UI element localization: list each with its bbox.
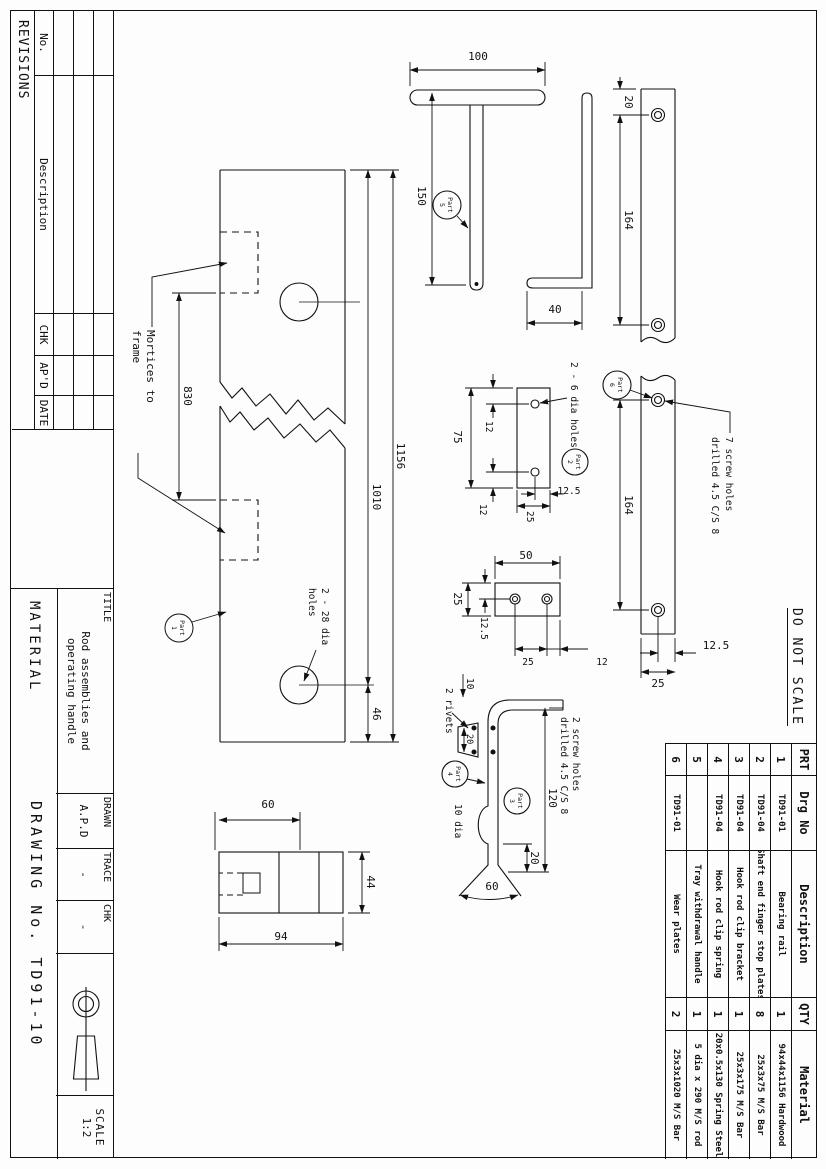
dim-60-end: 60 xyxy=(261,798,274,811)
dim-1010: 1010 xyxy=(370,484,383,511)
screw-holes-2-note: drilled 4.5 C/S 8 xyxy=(558,717,569,815)
dim-20: 20 xyxy=(622,95,635,108)
drawing-page: DO NOT SCALE No.DescriptionCHKAP'DDATE R… xyxy=(0,0,826,1169)
dim-150: 150 xyxy=(415,186,428,206)
svg-text:Part: Part xyxy=(616,377,624,393)
break-zigzag xyxy=(220,382,345,424)
svg-text:Part: Part xyxy=(454,766,462,782)
dim-94: 94 xyxy=(274,930,288,943)
mortice-hidden-outline xyxy=(220,500,258,560)
dim-25: 25 xyxy=(451,592,464,605)
screw-holes-7-note: drilled 4.5 C/S 8 xyxy=(709,437,720,535)
bearing-rail-labels: 1156 1010 46 830 Mortices to frame 2 - 2… xyxy=(130,330,407,721)
dim-60: 60 xyxy=(485,880,498,893)
svg-text:5: 5 xyxy=(438,203,446,207)
bearing-rail-view xyxy=(138,170,399,742)
drawing-sheet: DO NOT SCALE No.DescriptionCHKAP'DDATE R… xyxy=(0,0,826,1169)
dim-1156: 1156 xyxy=(394,443,407,470)
holes-28-note: 2 - 28 dia xyxy=(319,588,330,645)
svg-text:1: 1 xyxy=(170,626,178,630)
dim-12: 12 xyxy=(477,504,488,515)
holes-6-note: 2 - 6 dia holes xyxy=(568,362,579,448)
dim-100: 100 xyxy=(468,50,488,63)
handle-side-view xyxy=(527,93,592,330)
svg-text:2: 2 xyxy=(566,460,574,464)
bracket-top-labels: 50 25 12.5 25 12 xyxy=(451,549,608,668)
svg-text:3: 3 xyxy=(508,799,516,803)
dim-164: 164 xyxy=(622,495,635,515)
dim-12-5: 12.5 xyxy=(478,617,489,640)
svg-text:6: 6 xyxy=(608,383,616,387)
handle-front-view xyxy=(410,62,545,290)
dim-46: 46 xyxy=(370,707,383,720)
svg-text:Part: Part xyxy=(446,197,454,213)
svg-text:Part: Part xyxy=(516,793,524,809)
dim-12: 12 xyxy=(596,657,607,668)
dim-20: 20 xyxy=(528,851,541,864)
svg-text:4: 4 xyxy=(446,772,454,776)
dim-25: 25 xyxy=(522,657,533,668)
rod-dia-note: 10 dia xyxy=(452,804,463,838)
break-zigzag xyxy=(220,406,345,448)
svg-text:Part: Part xyxy=(574,454,582,470)
dim-12: 12 xyxy=(483,421,494,432)
wear-plate-labels: 20 164 164 12.5 25 7 screw holes drilled… xyxy=(608,95,734,690)
dim-10: 10 xyxy=(464,678,475,690)
dim-25: 25 xyxy=(524,511,535,522)
dim-44: 44 xyxy=(364,875,377,889)
screw-holes-2-note: 2 screw holes xyxy=(570,717,581,791)
dim-12-5: 12.5 xyxy=(703,639,730,652)
dim-20: 20 xyxy=(464,734,474,744)
dim-25: 25 xyxy=(651,677,664,690)
holes-28-note: holes xyxy=(306,588,317,617)
dim-164: 164 xyxy=(622,210,635,230)
drawing-canvas: 1156 1010 46 830 Mortices to frame 2 - 2… xyxy=(0,0,826,1169)
mortice-hidden-outline xyxy=(220,232,258,293)
dim-12-5: 12.5 xyxy=(558,486,581,497)
mortices-note: Mortices to xyxy=(144,330,157,403)
mortices-note: frame xyxy=(130,330,143,363)
rail-end-view xyxy=(215,812,370,951)
dim-75: 75 xyxy=(451,430,464,443)
dim-40: 40 xyxy=(548,303,561,316)
dim-50: 50 xyxy=(519,549,532,562)
svg-text:Part: Part xyxy=(178,620,186,636)
bracket-top-view xyxy=(462,556,588,656)
clip-spring-view xyxy=(442,674,563,900)
rivets-note: 2 rivets xyxy=(443,688,454,734)
dim-830: 830 xyxy=(181,386,194,406)
screw-holes-7-note: 7 screw holes xyxy=(723,437,734,511)
